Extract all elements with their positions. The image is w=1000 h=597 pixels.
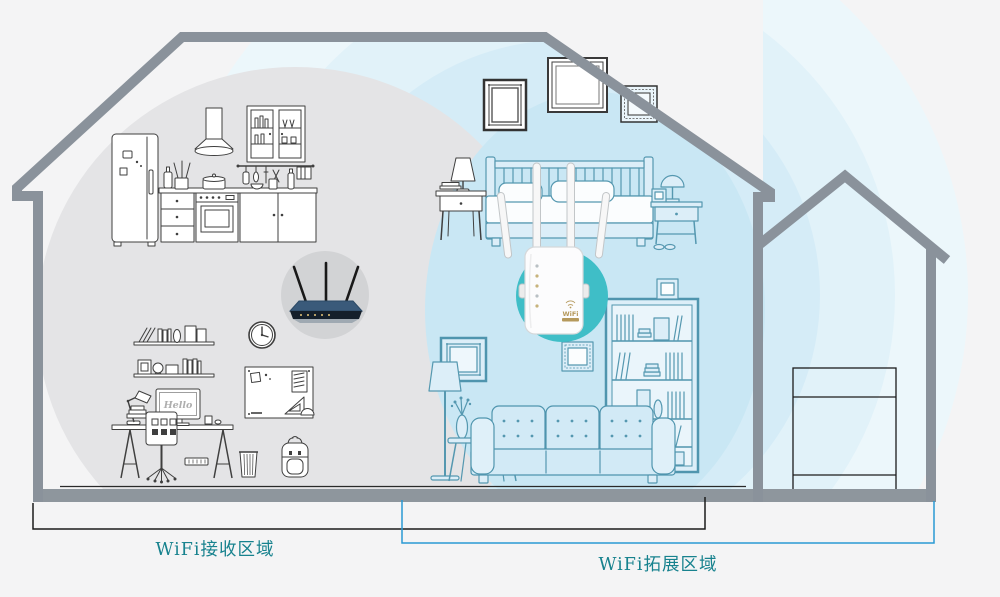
bookshelf-top-frame-icon [657, 279, 678, 299]
fridge-icon [112, 134, 158, 246]
extender-logo-text: WiFi [562, 310, 578, 318]
receive-zone-label: WiFi接收区域 [155, 540, 274, 560]
stove-icon [196, 193, 238, 242]
extend-zone-label: WiFi拓展区域 [598, 555, 717, 575]
floor-bar [33, 489, 936, 502]
trash-can-icon [239, 452, 258, 477]
extend-zone-bracket [402, 500, 934, 543]
router [281, 251, 369, 339]
sofa-icon [471, 406, 675, 483]
ornate-frame-icon [484, 80, 526, 130]
large-frame-icon [548, 58, 607, 112]
diagram-canvas: Hello [0, 0, 1000, 597]
keyboard-icon [185, 458, 208, 465]
desk-cup-icon [205, 416, 212, 424]
mouse-icon [215, 420, 221, 424]
living-small-frame-icon [562, 342, 593, 371]
monitor-screen-text: Hello [163, 400, 193, 411]
router-body-icon [290, 301, 362, 323]
pin-board [245, 367, 314, 418]
extender-logo-banner [562, 318, 579, 322]
kitchen-counter [159, 188, 317, 242]
wall-clock-icon [249, 322, 275, 348]
wifi-extender-diagram: Hello [0, 0, 1000, 597]
wall-cabinet-icon [247, 106, 305, 162]
